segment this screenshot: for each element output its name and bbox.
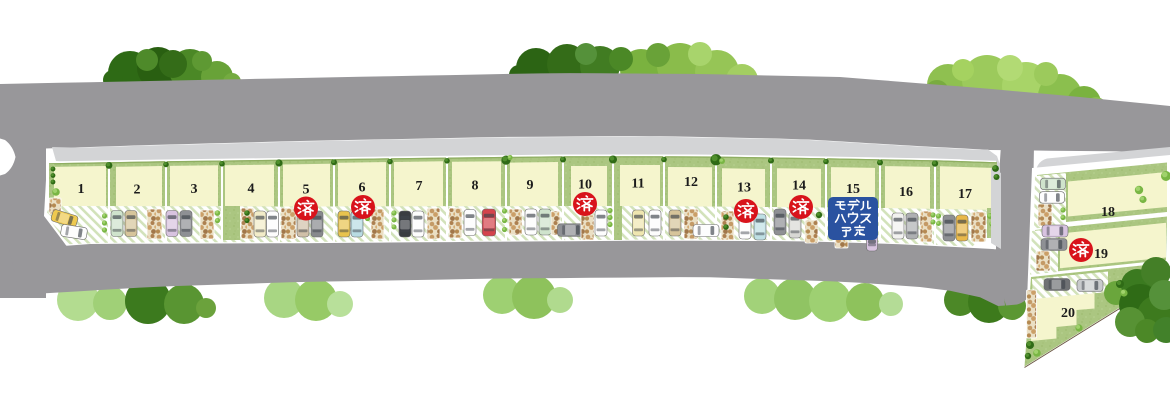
svg-text:10: 10: [578, 178, 592, 193]
svg-text:17: 17: [958, 187, 972, 202]
svg-text:18: 18: [1101, 205, 1115, 220]
svg-text:13: 13: [737, 180, 751, 195]
svg-text:15: 15: [846, 182, 860, 197]
svg-text:2: 2: [134, 183, 141, 198]
svg-text:8: 8: [472, 179, 479, 194]
svg-text:16: 16: [899, 185, 913, 200]
svg-text:7: 7: [416, 179, 423, 194]
svg-text:11: 11: [631, 177, 644, 192]
svg-text:6: 6: [359, 181, 366, 196]
svg-text:14: 14: [792, 179, 806, 194]
svg-text:5: 5: [303, 183, 310, 198]
svg-text:12: 12: [684, 175, 698, 190]
svg-text:19: 19: [1094, 247, 1108, 262]
svg-text:4: 4: [248, 182, 255, 197]
svg-text:20: 20: [1061, 306, 1075, 321]
svg-text:3: 3: [191, 182, 198, 197]
svg-text:9: 9: [527, 178, 534, 193]
svg-text:1: 1: [78, 182, 85, 197]
